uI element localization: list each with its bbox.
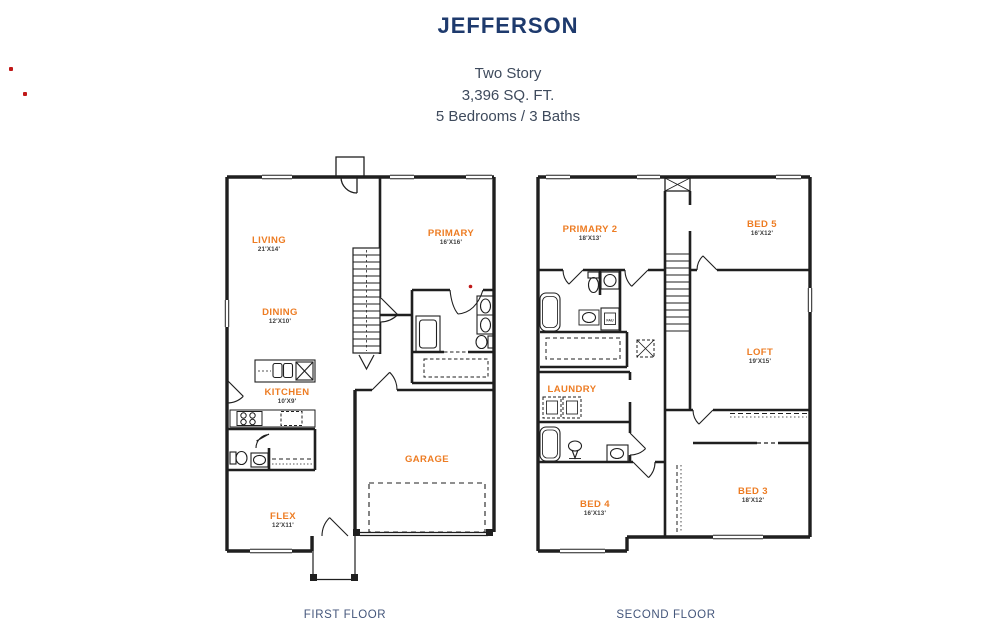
attic-access-hatch <box>637 340 654 357</box>
subtitle-sqft: 3,396 SQ. FT. <box>8 85 1000 107</box>
room-label-primary2: PRIMARY 2 <box>563 224 618 235</box>
room-dims-primary: 16'X16' <box>440 239 463 246</box>
subtitle-stories: Two Story <box>8 63 1000 85</box>
room-label-bed3: BED 3 <box>738 486 768 497</box>
bath3-fixtures <box>540 427 628 462</box>
room-dims-bed3: 18'X12' <box>742 497 765 504</box>
room-dims-living: 21'X14' <box>258 246 281 253</box>
plan-subtitle: Two Story 3,396 SQ. FT. 5 Bedrooms / 3 B… <box>8 63 1000 128</box>
room-dims-loft: 19'X15' <box>749 358 772 365</box>
room-label-laundry: LAUNDRY <box>548 384 597 395</box>
room-label-flex: FLEX <box>270 511 296 522</box>
room-label-dining: DINING <box>262 307 298 318</box>
red-marker-dot <box>9 67 13 71</box>
room-label-loft: LOFT <box>747 347 773 358</box>
powder-room-fixtures <box>230 452 268 468</box>
first-floor-caption: FIRST FLOOR <box>245 609 445 621</box>
floor-plan-sheet: JEFFERSON Two Story 3,396 SQ. FT. 5 Bedr… <box>0 0 1000 629</box>
room-label-primary: PRIMARY <box>428 228 475 239</box>
room-label-garage: GARAGE <box>405 454 449 465</box>
room-dims-kitchen: 10'X9' <box>278 398 297 405</box>
primary-closet-rod <box>424 352 488 377</box>
second-floor-caption: SECOND FLOOR <box>566 609 766 621</box>
subtitle-beds-baths: 5 Bedrooms / 3 Baths <box>8 106 1000 128</box>
room-label-bed4: BED 4 <box>580 499 610 510</box>
room-dims-dining: 12'X10' <box>269 318 292 325</box>
room-dims-flex: 12'X11' <box>272 522 294 529</box>
second-floor-plan: FAU <box>530 150 818 560</box>
bed3-closet-rod <box>677 414 807 534</box>
room-label-kitchen: KITCHEN <box>264 387 309 398</box>
attic-chase <box>665 178 690 191</box>
primary-bath-fixtures <box>416 296 494 352</box>
staircase <box>353 248 380 369</box>
red-marker-dot <box>23 92 27 96</box>
entry-porch <box>313 536 355 580</box>
garage-door-opening <box>360 533 488 536</box>
room-dims-primary2: 18'X13' <box>579 235 602 242</box>
red-marker-dot <box>469 285 473 289</box>
room-label-bed5: BED 5 <box>747 219 777 230</box>
refrigerator <box>281 412 302 426</box>
room-label-living: LIVING <box>252 235 286 246</box>
fau-label: FAU <box>606 319 614 323</box>
garage-door-outline <box>369 483 485 532</box>
hall-closet-rod <box>272 459 312 464</box>
plan-title: JEFFERSON <box>8 13 1000 39</box>
room-dims-bed4: 16'X13' <box>584 510 607 517</box>
first-floor-plan: LIVING 21'X14' DINING 12'X10' KITCHEN 10… <box>222 150 502 592</box>
primary2-closet-rod <box>546 338 620 359</box>
staircase <box>665 248 690 331</box>
room-dims-bed5: 16'X12' <box>751 230 774 237</box>
